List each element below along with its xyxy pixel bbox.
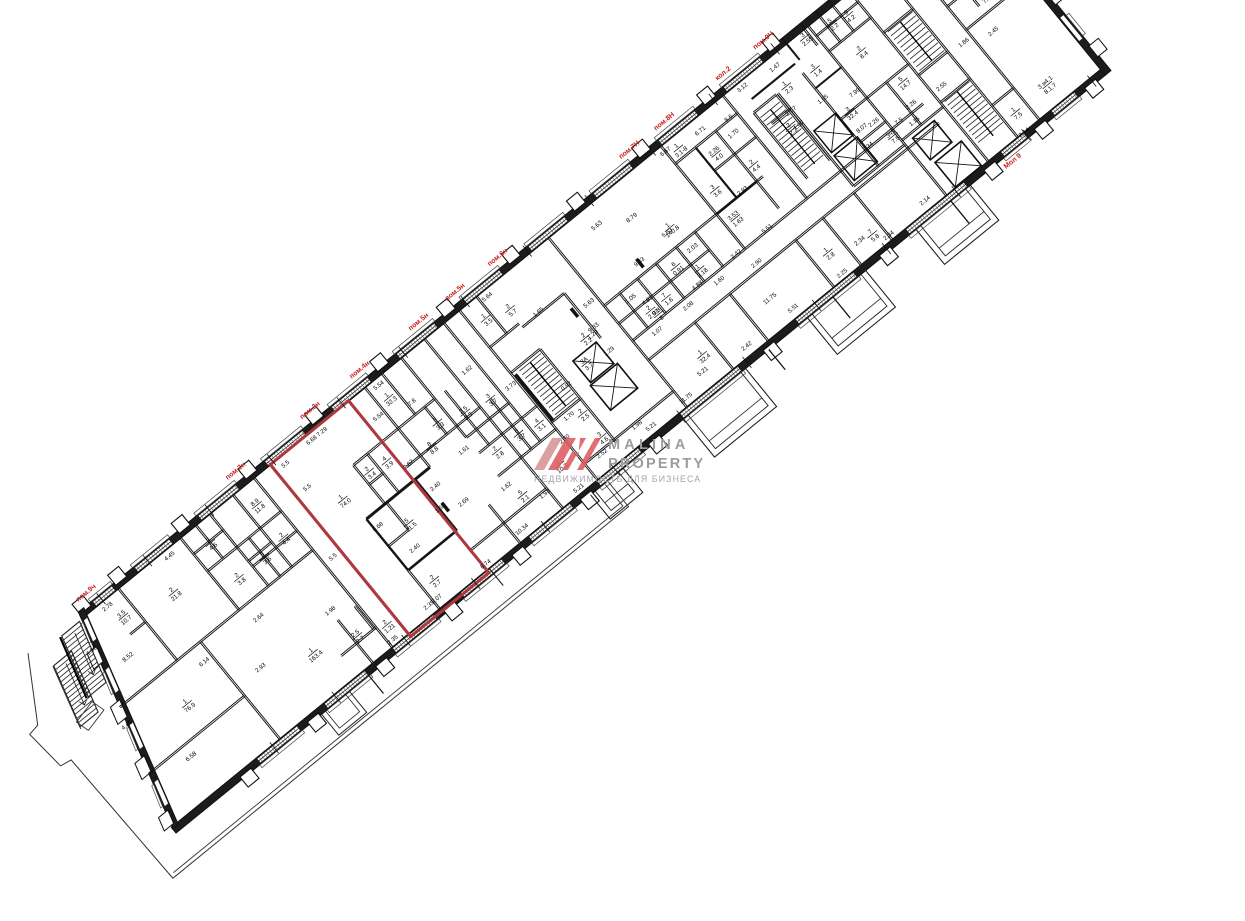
svg-text:MALINA: MALINA — [608, 437, 690, 453]
svg-text:PROPERTY: PROPERTY — [608, 456, 705, 472]
svg-text:НЕДВИЖИМОСТЬ ДЛЯ БИЗНЕСА: НЕДВИЖИМОСТЬ ДЛЯ БИЗНЕСА — [534, 474, 701, 484]
